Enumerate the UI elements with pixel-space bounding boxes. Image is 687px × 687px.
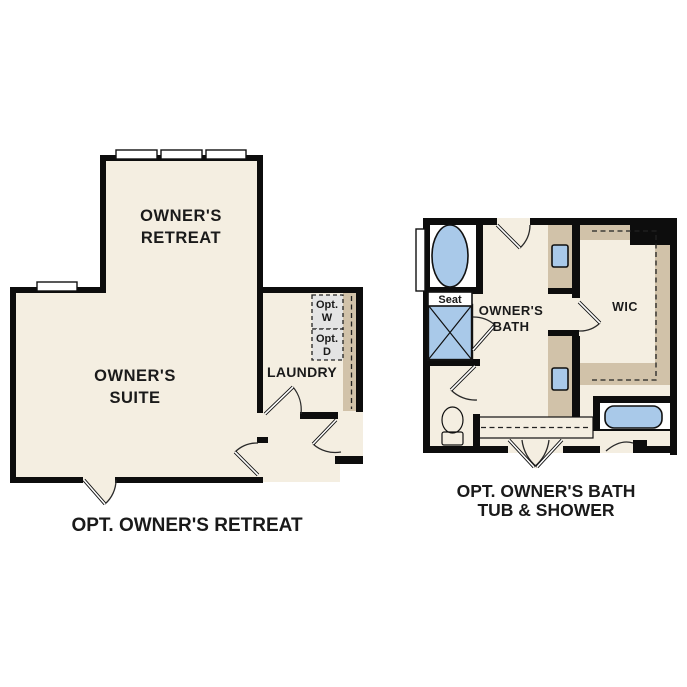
owners-bath-label-line2: BATH — [493, 319, 530, 334]
hall-lower-floor — [263, 456, 340, 482]
opt-washer-label-line1: Opt. — [316, 299, 338, 311]
retreat-window-3 — [206, 150, 246, 159]
shower-seat-label: Seat — [438, 294, 462, 306]
owners-bath-label-line1: OWNER'S — [479, 303, 543, 318]
retreat-window-2 — [161, 150, 202, 159]
right-plan-caption-line2: TUB & SHOWER — [477, 500, 614, 520]
sink-bottom — [552, 368, 568, 390]
laundry-closet-strip — [343, 293, 356, 411]
right-plan-caption-line1: OPT. OWNER'S BATH — [457, 481, 636, 501]
right-plan-owners-bath: OWNER'S BATH WIC Seat OPT. OWNER'S BATH … — [416, 218, 677, 520]
opt-dryer-label-line1: Opt. — [316, 333, 338, 345]
left-plan-owners-retreat: OWNER'S RETREAT OWNER'S SUITE LAUNDRY Op… — [10, 150, 363, 536]
wic-label: WIC — [612, 300, 638, 314]
owners-suite-floor — [10, 287, 263, 483]
opt-washer-label-line2: W — [322, 312, 333, 324]
owners-retreat-label-line1: OWNER'S — [140, 207, 222, 225]
owners-suite-label-line1: OWNER'S — [94, 367, 176, 385]
left-plan-caption: OPT. OWNER'S RETREAT — [71, 515, 303, 536]
garden-tub — [605, 406, 662, 428]
sink-top — [552, 245, 568, 267]
owners-retreat-label-line2: RETREAT — [141, 229, 221, 247]
wic-shelf-top — [578, 225, 630, 240]
entry-door-wedge — [508, 439, 563, 469]
laundry-label: LAUNDRY — [267, 364, 337, 380]
suite-window — [37, 282, 77, 291]
bath-window — [416, 229, 425, 291]
owners-suite-label-line2: SUITE — [109, 389, 160, 407]
floorplan-sheet: OWNER'S RETREAT OWNER'S SUITE LAUNDRY Op… — [0, 0, 687, 687]
retreat-window-1 — [116, 150, 157, 159]
opt-dryer-label-line2: D — [323, 346, 331, 358]
freestanding-tub — [432, 225, 468, 287]
